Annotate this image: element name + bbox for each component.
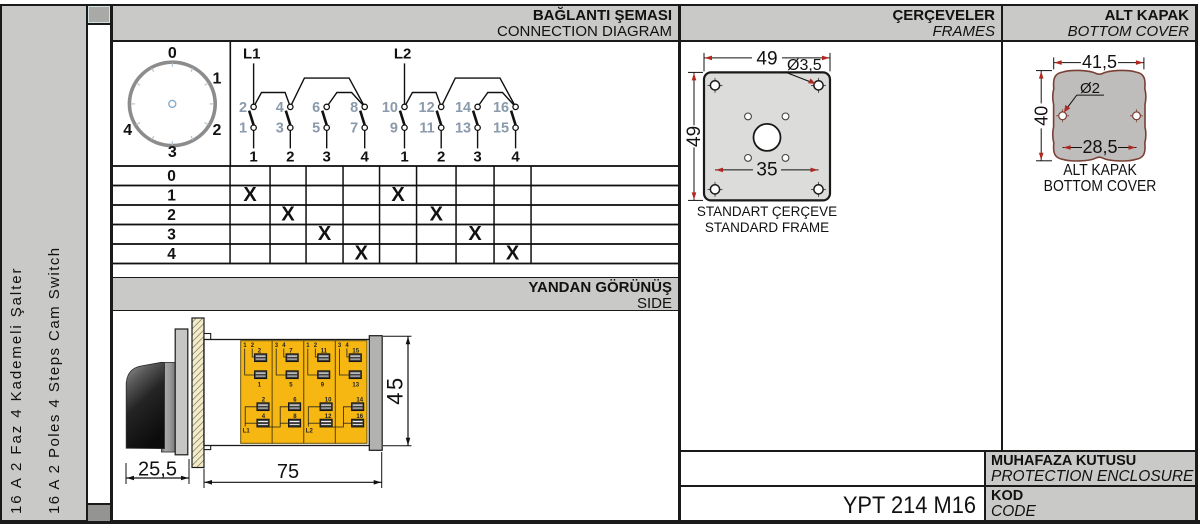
- svg-text:4: 4: [123, 122, 132, 139]
- svg-text:X: X: [430, 204, 444, 226]
- svg-text:15: 15: [493, 120, 509, 136]
- svg-text:41,5: 41,5: [1082, 51, 1117, 71]
- svg-text:1: 1: [212, 70, 221, 87]
- svg-text:X: X: [243, 184, 257, 206]
- svg-text:X: X: [281, 204, 295, 226]
- svg-text:4: 4: [276, 100, 284, 116]
- svg-text:5: 5: [312, 120, 320, 136]
- svg-text:75: 75: [277, 461, 299, 483]
- svg-text:25,5: 25,5: [138, 459, 177, 481]
- svg-text:3: 3: [276, 120, 284, 136]
- svg-text:9: 9: [390, 120, 398, 136]
- svg-text:X: X: [355, 243, 369, 265]
- svg-text:0: 0: [167, 168, 176, 185]
- svg-text:L1: L1: [243, 45, 261, 62]
- svg-text:49: 49: [684, 125, 705, 146]
- svg-text:1: 1: [167, 188, 176, 205]
- svg-text:11: 11: [419, 120, 434, 136]
- svg-text:X: X: [506, 243, 520, 265]
- svg-text:2: 2: [239, 100, 247, 116]
- svg-text:40: 40: [1032, 105, 1052, 125]
- svg-text:7: 7: [350, 120, 358, 136]
- svg-text:16: 16: [493, 100, 509, 116]
- svg-text:45: 45: [383, 375, 408, 404]
- svg-text:12: 12: [419, 100, 435, 116]
- svg-text:10: 10: [382, 100, 398, 116]
- svg-text:28,5: 28,5: [1082, 136, 1117, 156]
- svg-text:L2: L2: [394, 45, 412, 62]
- svg-text:Ø2: Ø2: [1080, 79, 1100, 96]
- svg-text:6: 6: [312, 100, 320, 116]
- svg-text:35: 35: [756, 159, 777, 180]
- svg-text:X: X: [468, 223, 482, 245]
- svg-text:8: 8: [350, 100, 358, 116]
- svg-text:Ø3,5: Ø3,5: [787, 56, 822, 73]
- svg-text:13: 13: [352, 383, 359, 389]
- svg-text:2: 2: [167, 207, 176, 224]
- svg-text:14: 14: [455, 100, 471, 116]
- svg-text:49: 49: [756, 48, 777, 69]
- svg-text:4: 4: [167, 246, 176, 263]
- svg-text:2: 2: [212, 122, 221, 139]
- svg-text:3: 3: [167, 227, 176, 244]
- svg-text:X: X: [391, 184, 405, 206]
- svg-text:1: 1: [239, 120, 247, 136]
- svg-text:13: 13: [455, 120, 471, 136]
- svg-text:0: 0: [168, 44, 177, 61]
- svg-text:L2: L2: [306, 429, 314, 435]
- svg-text:3: 3: [168, 143, 177, 160]
- svg-text:X: X: [318, 223, 332, 245]
- svg-text:L1: L1: [243, 429, 251, 435]
